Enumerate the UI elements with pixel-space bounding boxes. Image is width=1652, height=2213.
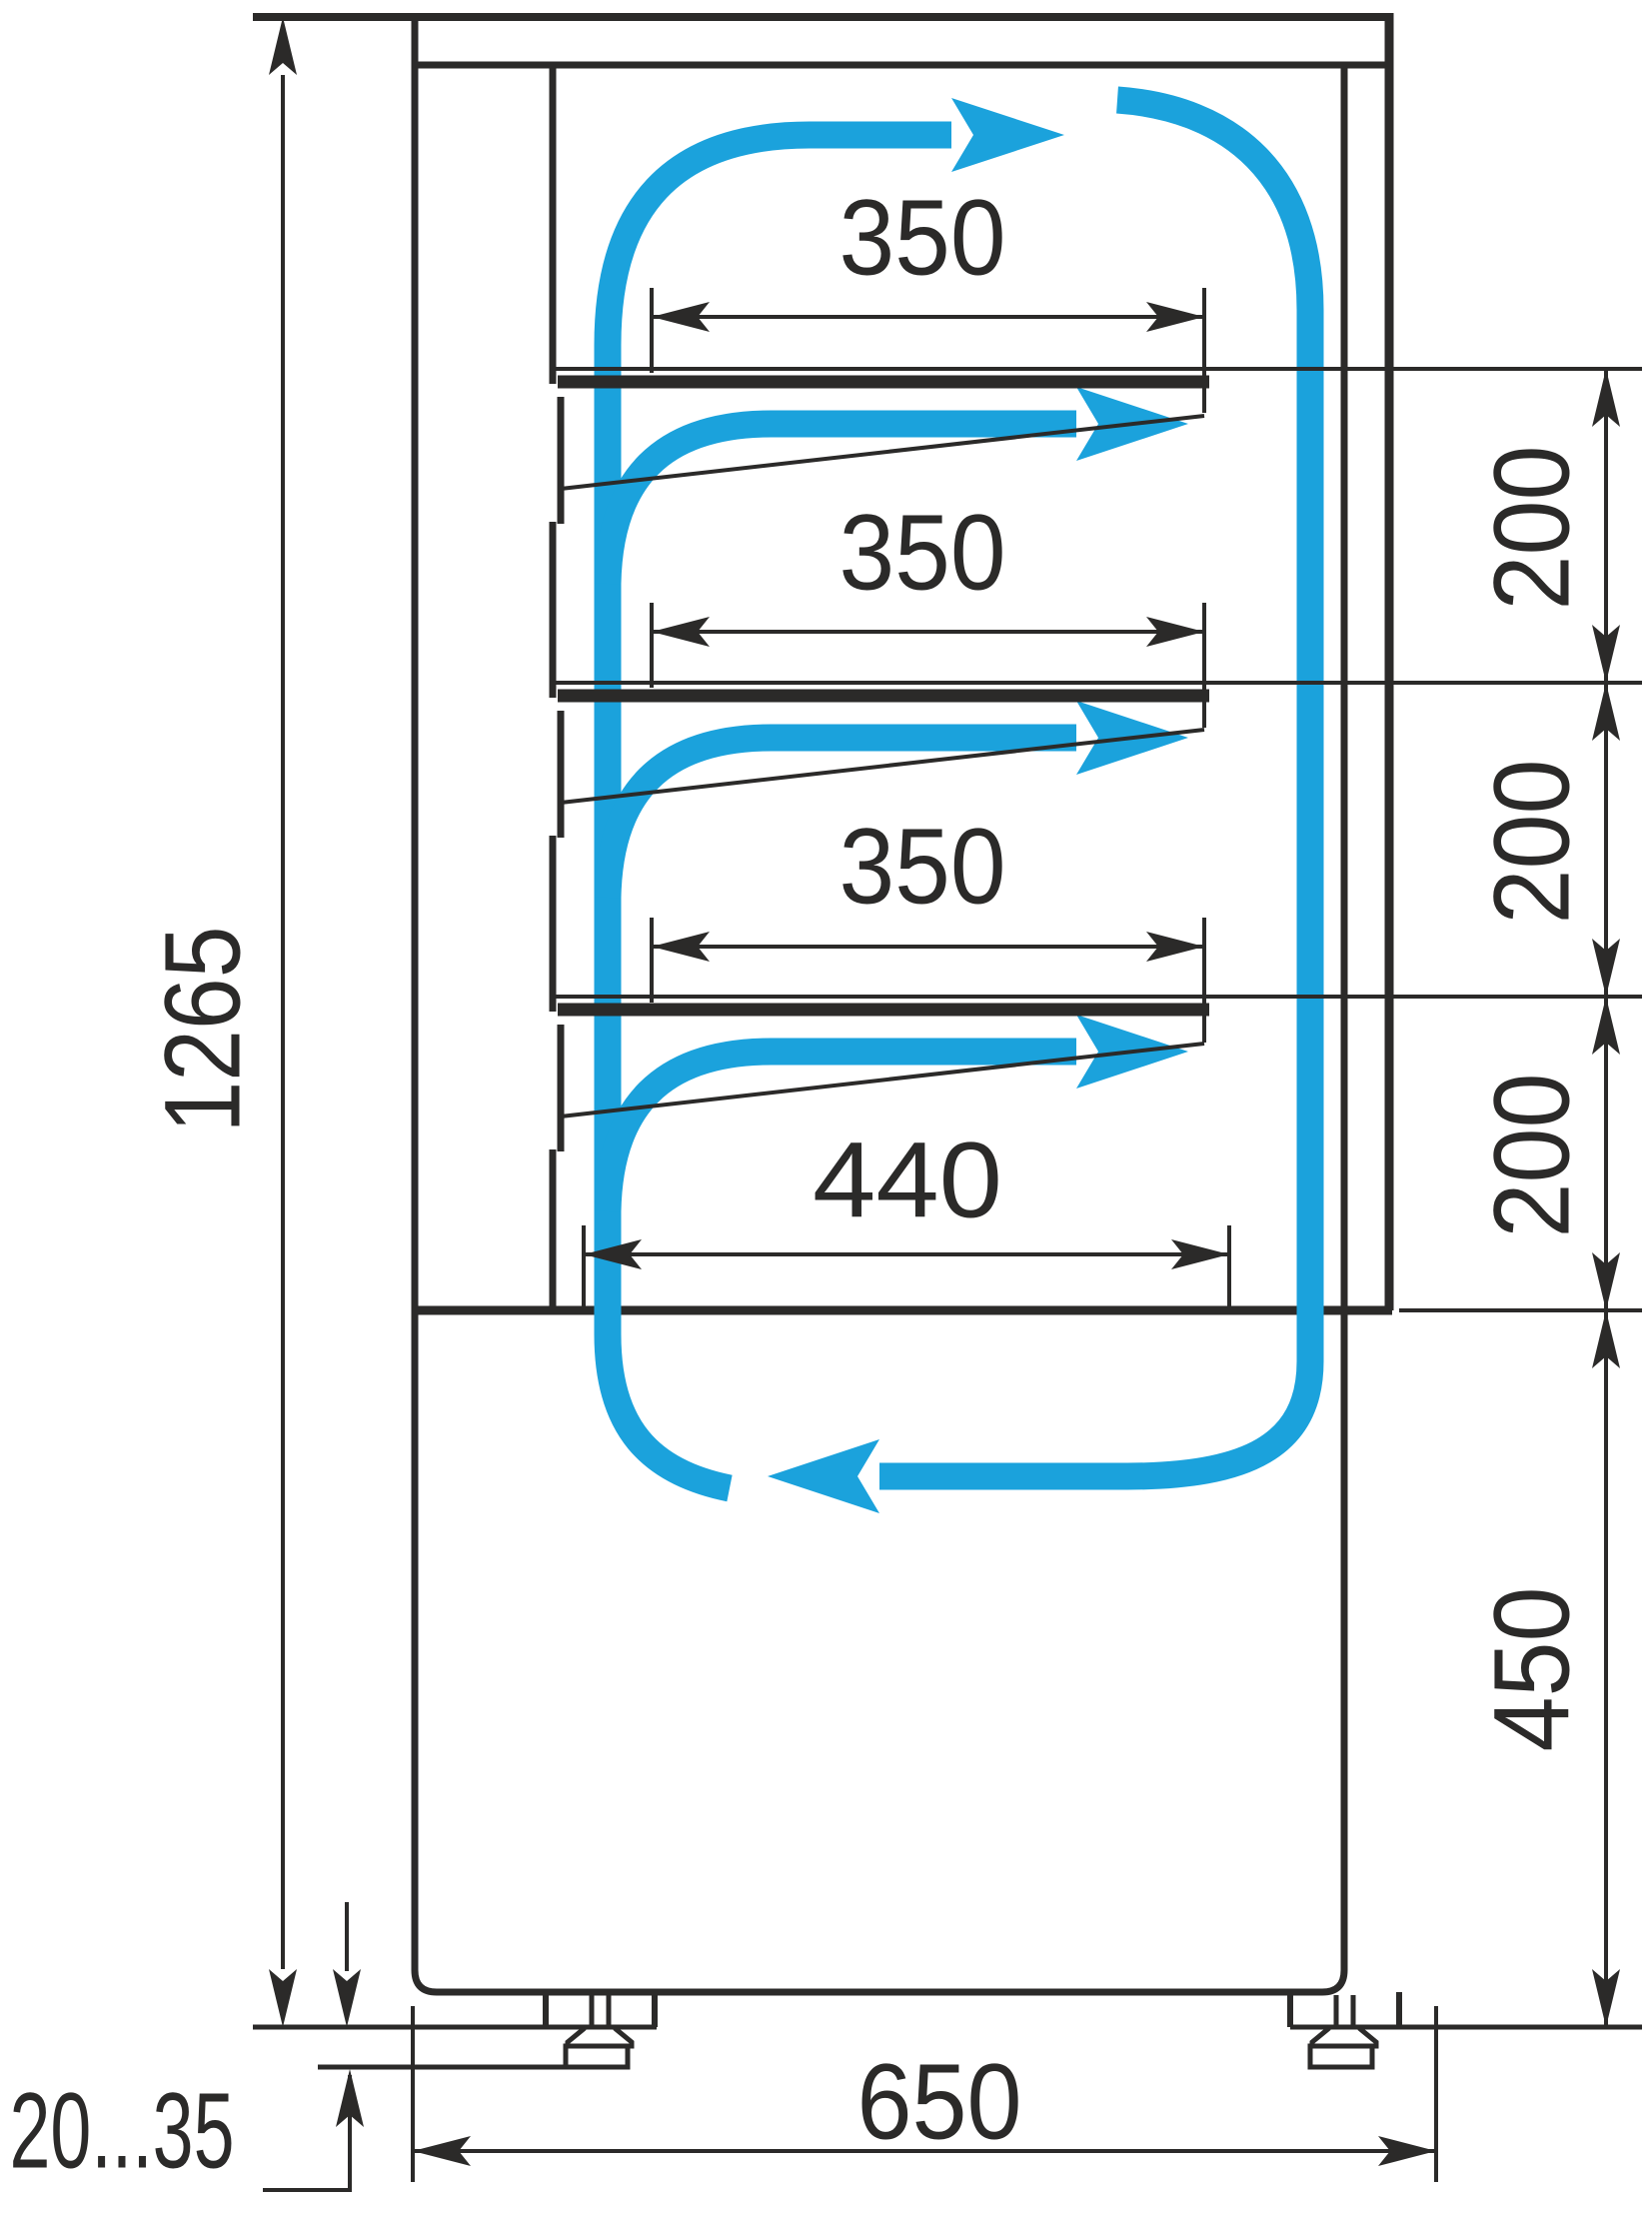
foot-base-block (1310, 2046, 1372, 2067)
foot-screw-cone (1312, 2028, 1376, 2046)
dim-bottom-shelf-width: 440 (584, 1119, 1229, 1307)
dim-label-overall-height: 1265 (142, 927, 263, 1133)
dim-label-bottom-shelf-width: 440 (813, 1119, 1002, 1240)
dim-foot-adjustment: 20...35 (10, 1902, 658, 2191)
dim-label-shelf-gap: 200 (1471, 1074, 1592, 1238)
foot-base-block (566, 2046, 628, 2067)
dim-label-foot-range: 20...35 (10, 2070, 235, 2191)
dim-label-shelf-gap: 200 (1471, 760, 1592, 925)
dim-label-depth: 650 (857, 2041, 1022, 2162)
dim-depth: 650 (413, 2006, 1436, 2182)
cabinet-structure (253, 13, 1392, 1992)
dim-label-base-height: 450 (1471, 1587, 1592, 1752)
dim-label-shelf-width: 350 (839, 177, 1006, 298)
airflow-arrow-icon (768, 1439, 879, 1513)
display-case-section-drawing: 1265 350 350 350 440 (0, 0, 1652, 2213)
back-panel (553, 65, 561, 1310)
dim-label-shelf-width: 350 (839, 806, 1006, 927)
dimension-arrow-icon (333, 1969, 361, 2027)
dim-label-shelf-width: 350 (839, 492, 1006, 613)
dimension-arrow-icon (269, 1969, 297, 2027)
drawing-canvas: 1265 350 350 350 440 (0, 0, 1652, 2213)
dimension-arrow-icon (269, 17, 297, 75)
airflow-arrow-icon (951, 98, 1064, 172)
airflow-front-return (879, 100, 1310, 1476)
dim-label-shelf-gap: 200 (1471, 446, 1592, 611)
foot-screw-cone (568, 2028, 632, 2046)
dim-overall-height: 1265 (142, 17, 298, 2027)
